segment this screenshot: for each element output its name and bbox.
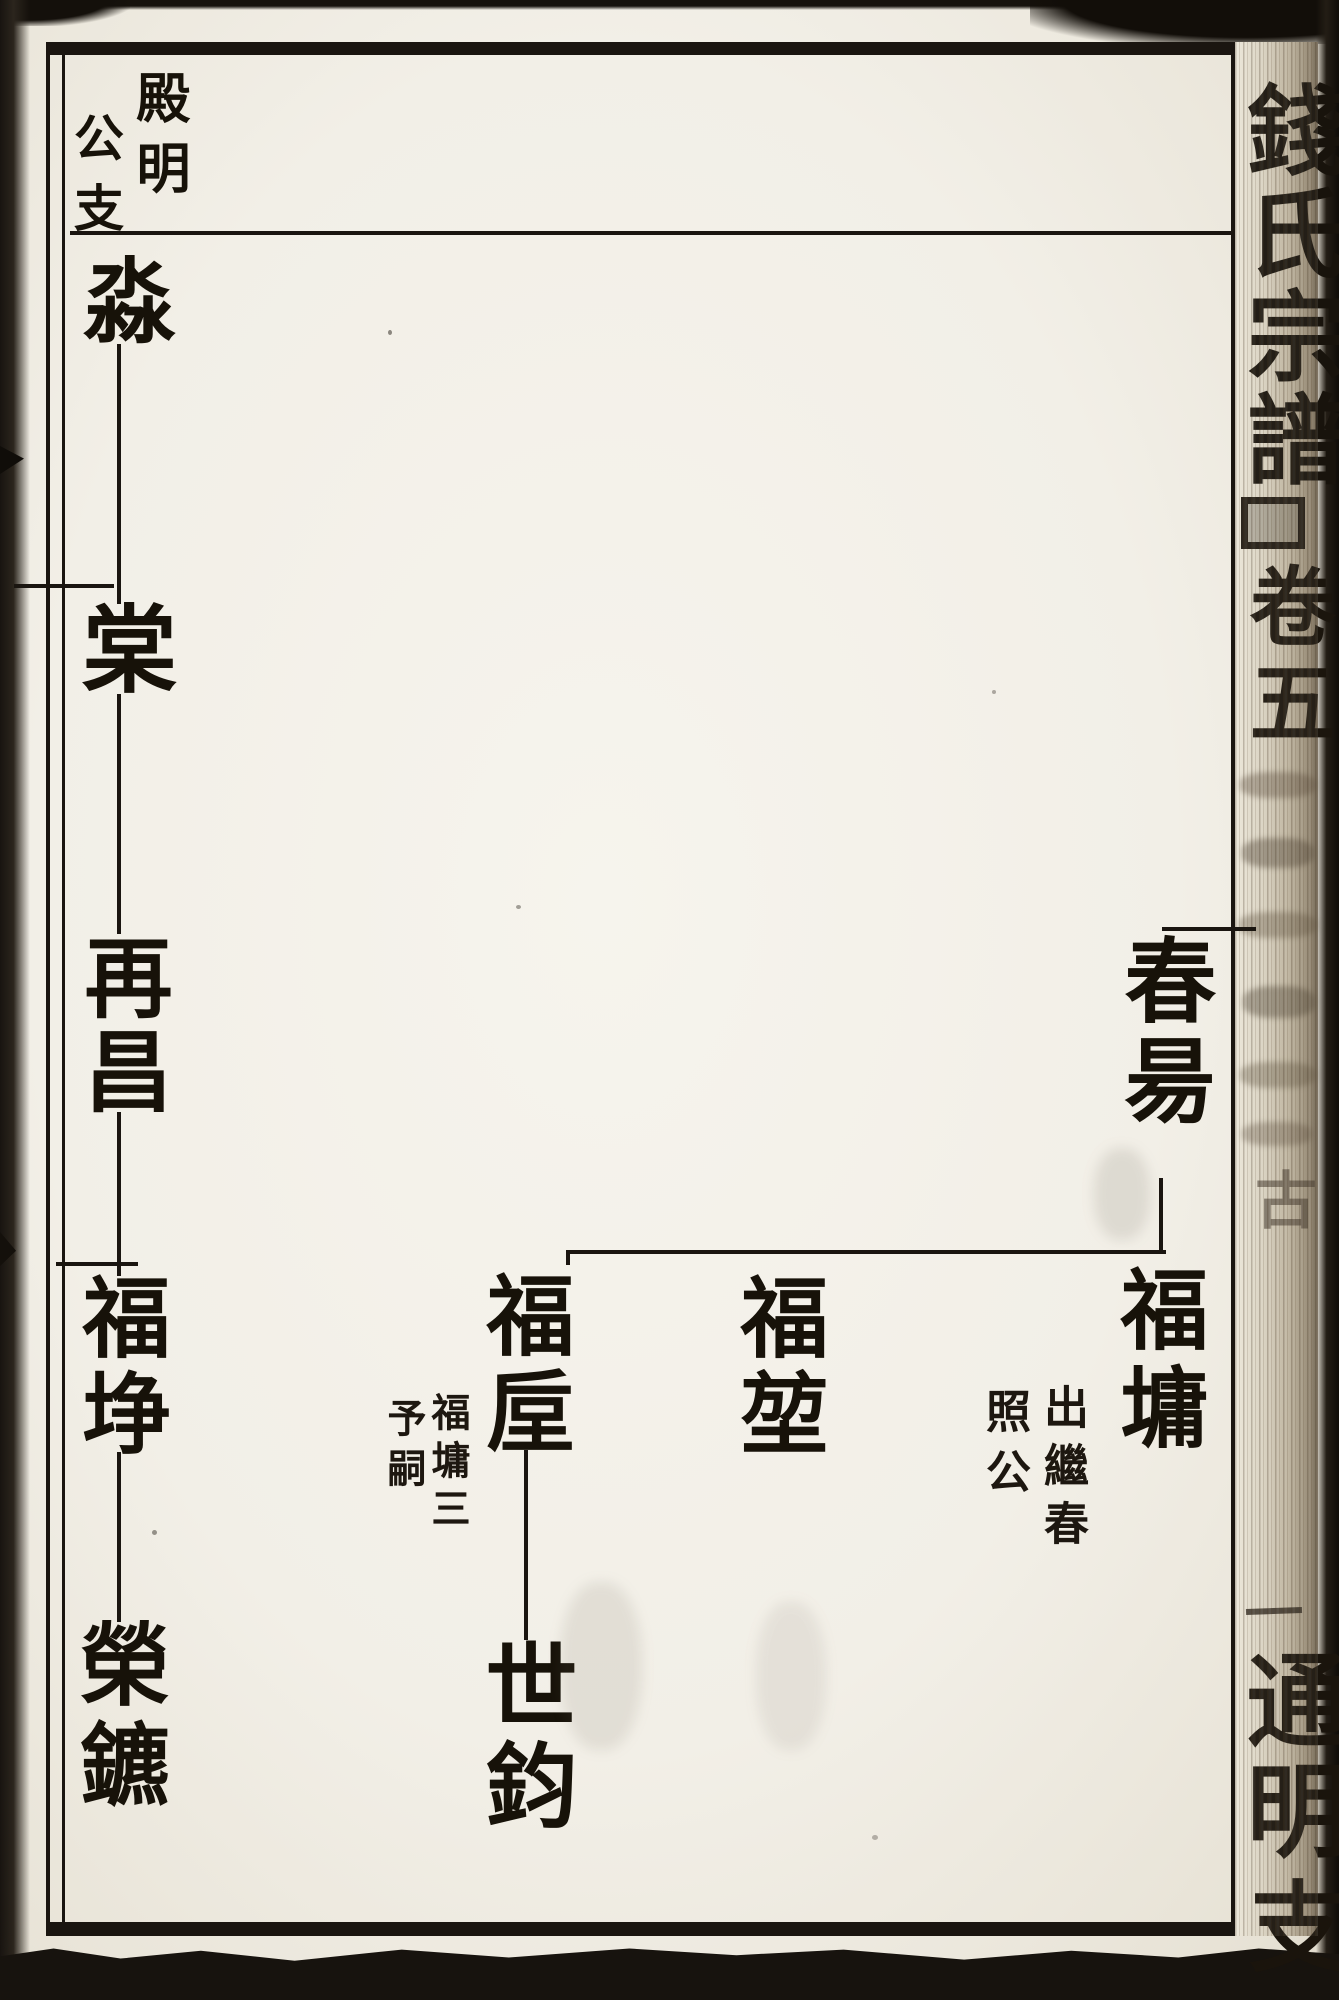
lineage-line-3 (117, 1112, 121, 1276)
person-trunk-3: 再昌 (78, 932, 166, 1120)
grandchild-line (524, 1450, 528, 1640)
note-adoption-col-right: 出繼春 (1040, 1384, 1085, 1558)
spine-grain-stripes (1235, 42, 1318, 1936)
branch-horizontal-line (566, 1250, 1166, 1254)
person-grandchild: 世鈞 (478, 1638, 570, 1838)
header-branch-title-right: 殿明 (132, 70, 186, 210)
branch-parent-drop-line (1159, 1178, 1163, 1254)
person-child-right: 福墉 (1114, 1264, 1202, 1460)
person-trunk-1: 淼 (76, 253, 168, 345)
person-branch-parent: 春昜 (1117, 933, 1209, 1133)
bleed-ghost (1094, 1148, 1150, 1240)
person-trunk-5: 榮鑣 (72, 1618, 162, 1818)
ink-speck (388, 330, 392, 335)
ink-speck (992, 690, 996, 694)
lineage-line-1 (117, 344, 121, 604)
note-heir-col-right: 福墉三 (428, 1392, 467, 1536)
person-child-middle: 福堃 (734, 1272, 822, 1464)
ink-speck (152, 1530, 157, 1535)
person-trunk-2: 棠 (74, 600, 169, 695)
header-branch-title-left: 公支 (70, 112, 120, 252)
top-right-ink-blob (1030, 0, 1339, 44)
page-border-left-outer (46, 42, 50, 1936)
left-edge-ink (0, 0, 30, 2000)
lineage-line-4 (117, 1452, 121, 1622)
person-child-left: 福垕 (480, 1270, 568, 1462)
margin-tick-1 (14, 584, 114, 588)
note-adoption-col-left: 照公 (982, 1388, 1027, 1508)
branch-left-hook (566, 1250, 570, 1265)
header-rule (70, 231, 1233, 235)
person-trunk-4: 福埩 (76, 1272, 164, 1464)
page-frame-top (46, 42, 1238, 55)
ink-speck (516, 905, 521, 909)
bleed-ghost (560, 1582, 642, 1750)
lineage-line-2 (117, 694, 121, 934)
page-frame-bottom (46, 1922, 1238, 1936)
ink-speck (872, 1835, 878, 1840)
note-heir-col-left: 予嗣 (384, 1398, 423, 1498)
scanned-genealogy-page: 錢氏宗譜 卷五 古 通明 支 殿明 公支 淼 棠 再昌 福埩 榮鑣 春昜 福垕 … (0, 0, 1339, 2000)
branch-parent-tick (1162, 927, 1256, 931)
bottom-edge-ink (0, 1944, 1339, 2000)
bleed-ghost (756, 1602, 826, 1750)
margin-tick-2 (56, 1262, 138, 1266)
